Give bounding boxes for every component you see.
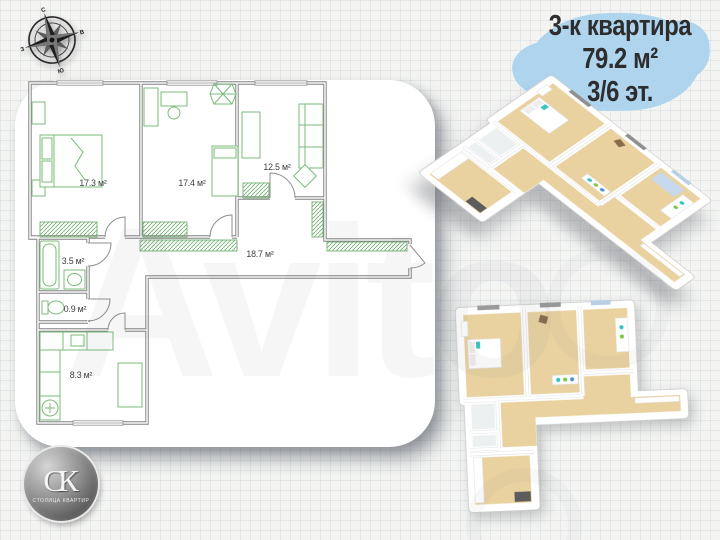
render-3d-topdown [443, 292, 711, 529]
room-label-bedroom-2: 17.4 м² [178, 178, 205, 188]
room-label-living: 12.5 м² [263, 162, 290, 172]
header-area: 79.2 м² [526, 43, 715, 76]
compass-east-label: В [79, 29, 85, 36]
logo-initials: СК [43, 465, 72, 496]
compass-icon: С В Ю З [16, 4, 88, 76]
room-label-wc: 0.9 м² [64, 304, 87, 314]
room-label-hallway: 18.7 м² [246, 249, 273, 259]
room-label-bathroom: 3.5 м² [62, 256, 85, 266]
compass-north-label: С [41, 7, 47, 14]
compass-west-label: З [20, 47, 25, 54]
floorplan-card: 17.3 м² 17.4 м² 12.5 м² 18.7 м² 3.5 м² 0… [15, 80, 435, 447]
listing-image: С В Ю З [0, 0, 720, 540]
sofa [242, 104, 323, 187]
header-floor: 3/6 эт. [526, 76, 715, 109]
compass-south-label: Ю [57, 68, 65, 75]
toilet [42, 301, 64, 314]
logo-subtitle: СТОЛИЦА КВАРТИР [33, 498, 90, 504]
listing-header: 3-к квартира 79.2 м² 3/6 эт. [526, 10, 715, 109]
room-label-kitchen: 8.3 м² [70, 370, 93, 380]
header-title: 3-к квартира [526, 10, 715, 43]
room-label-bedroom-1: 17.3 м² [79, 178, 106, 188]
floorplan-2d: 17.3 м² 17.4 м² 12.5 м² 18.7 м² 3.5 м² 0… [15, 80, 435, 447]
agency-logo-badge: СК СТОЛИЦА КВАРТИР [24, 447, 98, 521]
